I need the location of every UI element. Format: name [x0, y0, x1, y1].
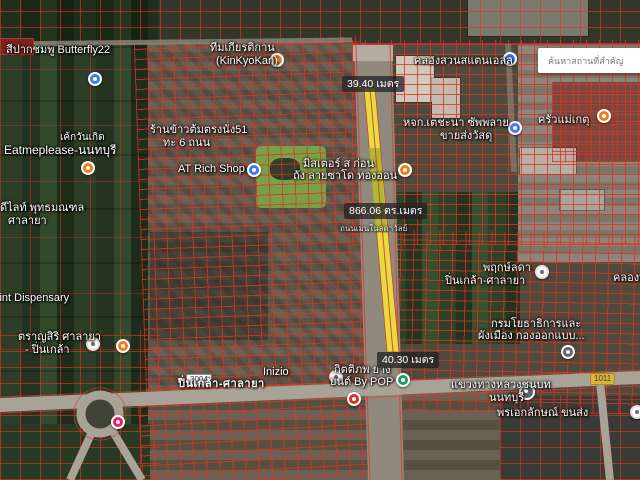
- kruamaeket-marker-icon[interactable]: [597, 109, 611, 123]
- label-pinklao-salaya-road[interactable]: ปิ่นเกล้า-ศาลายา: [178, 378, 265, 390]
- label-burasiri-1[interactable]: ตราญสิริ ศาลายา: [18, 331, 101, 343]
- label-mister-1[interactable]: มิสเตอร์ ส ก่อน: [303, 158, 374, 170]
- label-techana-2[interactable]: ขายส่งวัสดุ: [440, 130, 492, 142]
- map-canvas[interactable]: 39.40 เมตร 866.06 ตร.เมตร 40.30 เมตร 300…: [0, 0, 640, 480]
- orange-marker-icon[interactable]: [116, 339, 130, 353]
- label-kittiphop-2[interactable]: ยนต์ By POP: [330, 376, 393, 388]
- label-klong-suan[interactable]: คลองสวนสแตนเอลล: [414, 55, 513, 67]
- label-inizio[interactable]: Inizio: [263, 366, 289, 378]
- butterfly-marker-icon[interactable]: [88, 72, 102, 86]
- measurement-bottom-badge: 40.30 เมตร: [377, 352, 439, 368]
- label-atrichshop[interactable]: AT Rich Shop: [178, 163, 245, 175]
- measurement-area-badge: 866.06 ตร.เมตร: [344, 203, 427, 219]
- label-rural-highway-1[interactable]: แขวงทางหลวงชนบท: [451, 379, 551, 391]
- pruksalada-marker-icon[interactable]: [535, 265, 549, 279]
- label-kinkyokan-2[interactable]: (KinKyoKan): [216, 55, 278, 67]
- label-khaotom-1[interactable]: ร้านข้าวต้มตรงนั่ง51: [150, 124, 247, 136]
- search-box[interactable]: [538, 48, 640, 73]
- eatmeplease-marker-icon[interactable]: [81, 161, 95, 175]
- road-spoke: [112, 430, 142, 480]
- label-eatmeplease-2[interactable]: Eatmeplease-นนทบุรี: [4, 144, 116, 156]
- route-shield-right: 1011: [590, 373, 615, 385]
- label-techana-1[interactable]: หจก.เตชะนา ซัพพลาย: [403, 117, 509, 129]
- label-pruksalada-2[interactable]: ปิ่นเกล้า-ศาลายา: [445, 275, 525, 287]
- label-mister-2[interactable]: ถัง ลายซาโด ทองออน: [293, 170, 397, 182]
- mister-marker-icon[interactable]: [398, 163, 412, 177]
- label-klong-partial[interactable]: คลองบ: [613, 272, 640, 284]
- label-yotha-2[interactable]: ผังเมือง กองออกแบบ...: [478, 330, 585, 342]
- yotha-marker-icon[interactable]: [561, 345, 575, 359]
- road-spoke: [70, 432, 92, 480]
- label-dlife-2[interactable]: ศาลายา: [8, 215, 47, 227]
- label-kinkyokan-1[interactable]: ทีมเกียรติกาน: [210, 42, 275, 54]
- kittiphop-marker-icon[interactable]: [396, 373, 410, 387]
- label-kruamaeket[interactable]: ครัวแม่เกตุ: [538, 114, 589, 126]
- search-input[interactable]: [546, 55, 640, 67]
- measurement-top-badge: 39.40 เมตร: [342, 76, 404, 92]
- label-lane: ถนนเมนในลดาวัลย์: [340, 223, 407, 235]
- atrichshop-marker-icon[interactable]: [247, 163, 261, 177]
- road-bridge: [353, 45, 393, 61]
- pink-marker-icon[interactable]: [111, 415, 125, 429]
- phra-marker-icon[interactable]: [630, 405, 640, 419]
- label-dlife-1[interactable]: ดีไลท์ พุทธมณฑล: [0, 202, 84, 214]
- label-phra-ekkalak[interactable]: พรเอกลักษณ์ ขนส่ง: [497, 407, 588, 419]
- road-stub-right: [600, 382, 610, 480]
- label-butterfly22[interactable]: สีปากชมพู Butterfly22: [6, 44, 110, 56]
- label-yotha-1[interactable]: กรมโยธาธิการและ: [491, 318, 581, 330]
- fuel-marker-icon[interactable]: [347, 392, 361, 406]
- label-khaotom-2[interactable]: ทะ 6 ถนน: [163, 137, 210, 149]
- techana-marker-icon[interactable]: [508, 121, 522, 135]
- label-burasiri-2[interactable]: - ปิ่นเกล้า: [25, 344, 70, 356]
- label-pruksalada-1[interactable]: พฤกษ์ลดา: [483, 262, 531, 274]
- label-rural-highway-2[interactable]: นนทบุรี: [489, 392, 524, 404]
- label-point-dispensary[interactable]: Point Dispensary: [0, 292, 69, 304]
